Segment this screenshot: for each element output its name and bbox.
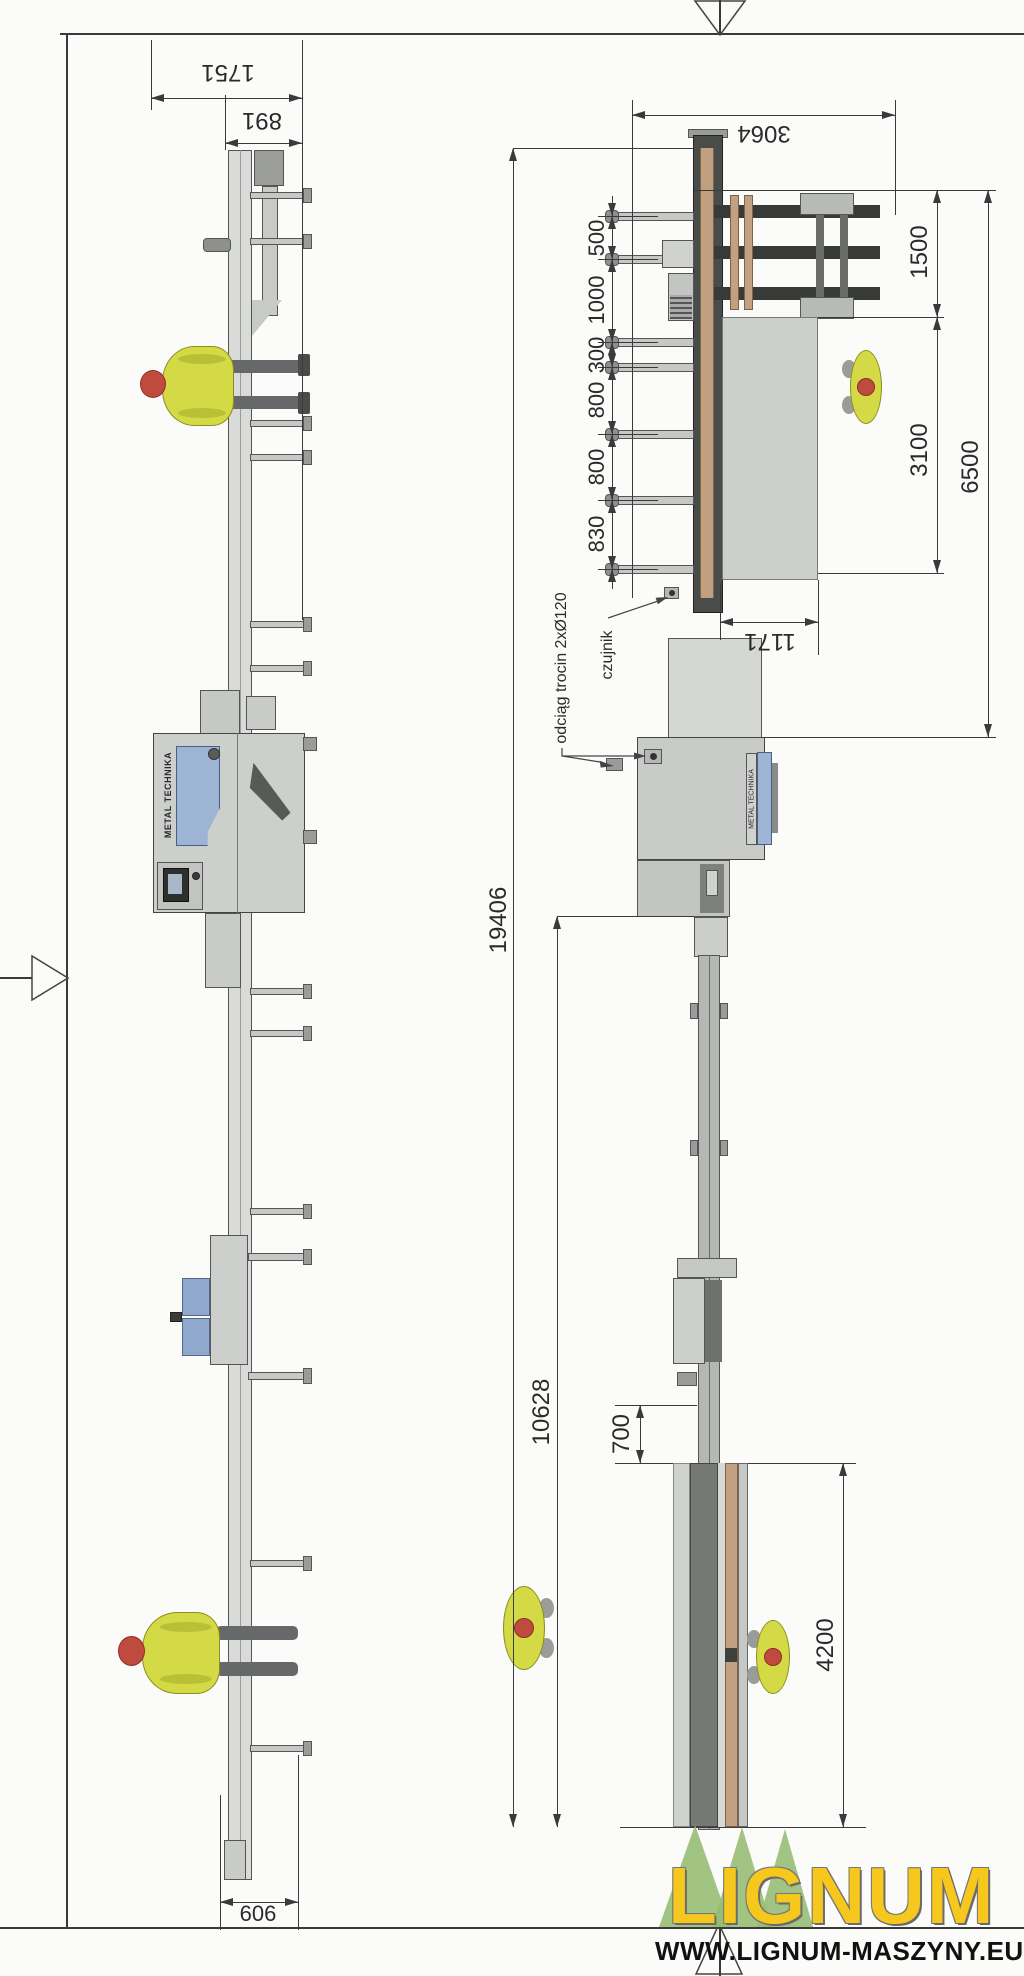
ext-line (513, 148, 693, 149)
dim-arrow (553, 1814, 561, 1827)
roller-stand (250, 621, 306, 628)
roller-stand (250, 454, 306, 461)
ext-line (720, 585, 721, 640)
board-on-chain (744, 195, 753, 310)
dim-line-1500-3100 (937, 190, 938, 573)
cabinet-bottom-column (205, 913, 241, 988)
dim-arrow (608, 434, 616, 447)
dim-text-830: 830 (584, 516, 610, 553)
dim-arrow (608, 500, 616, 513)
worker-helmet (514, 1618, 534, 1638)
section-marker-left-icon (30, 954, 70, 1002)
dim-arrow (509, 148, 517, 161)
dim-arrow (608, 556, 616, 569)
dim-text-891: 891 (242, 106, 282, 134)
ext-line (694, 190, 996, 191)
roller-stand-foot (303, 1556, 312, 1571)
motor-vent-grid (670, 295, 692, 319)
dim-text-19406: 19406 (485, 887, 513, 954)
cabinet-button (208, 748, 220, 760)
dim-arrow (933, 317, 941, 330)
dim-arrow (608, 421, 616, 434)
cabinet-brand-label: METAL TECHNIKA (163, 752, 173, 838)
elevation-gusset (252, 300, 282, 336)
elevation-infeed-mast (262, 186, 278, 316)
section-marker-left-line (0, 977, 32, 979)
outfeed-table-stop (725, 1648, 737, 1662)
outfeed-foot (720, 1140, 728, 1156)
plan-saw-neck (694, 917, 728, 957)
cabinet-port-lower (303, 830, 317, 844)
worker-boot (298, 354, 310, 376)
roller-stand-foot (303, 1026, 312, 1041)
roller-stand-foot (303, 1368, 312, 1384)
dim-text-4200: 4200 (812, 1618, 840, 1671)
worker-top-2 (503, 1586, 545, 1670)
dim-arrow (933, 560, 941, 573)
roller-stand-foot (303, 188, 312, 203)
dim-arrow (608, 259, 616, 272)
dim-line-3064 (632, 115, 895, 116)
ext-line (598, 569, 658, 570)
roller-stand-foot (303, 617, 312, 632)
worker-arm (178, 354, 226, 364)
worker-helmet (764, 1648, 782, 1666)
dim-line-6500 (988, 190, 989, 737)
dim-arrow (720, 618, 733, 626)
dim-arrow (636, 1405, 644, 1418)
outfeed-bracket (677, 1372, 697, 1386)
cross-module-body (210, 1235, 248, 1365)
ext-line (615, 1463, 673, 1464)
ext-line (763, 737, 996, 738)
section-marker-top-line (719, 0, 721, 34)
ext-line (557, 916, 694, 917)
plan-saw-bracket (772, 763, 778, 833)
worker-leg (228, 396, 306, 409)
roller-stand-foot (303, 450, 312, 465)
ext-line (220, 1795, 221, 1930)
dim-arrow (553, 916, 561, 929)
roller-stand (250, 238, 306, 245)
ext-line (598, 259, 658, 260)
dim-arrow (933, 190, 941, 203)
elevation-infeed-head-block (254, 150, 284, 186)
dim-line-1751 (151, 98, 302, 99)
worker-arm (160, 1674, 212, 1684)
dim-arrow (289, 94, 302, 102)
cabinet-port-upper (303, 737, 317, 751)
roller-stand (250, 1745, 306, 1752)
ext-line (818, 573, 944, 574)
roller-stand (250, 1560, 306, 1567)
ext-line (298, 1755, 299, 1930)
dim-text-1000: 1000 (584, 276, 610, 325)
rail-end-block (224, 1840, 246, 1880)
dim-arrow (984, 190, 992, 203)
worker-helmet (857, 378, 875, 396)
cross-module-door-upper (182, 1278, 210, 1316)
dim-line-19406 (513, 148, 514, 1827)
dim-text-606: 606 (240, 1901, 277, 1927)
dim-arrow (839, 1463, 847, 1476)
dim-text-6500: 6500 (957, 440, 985, 493)
dim-line-4200 (843, 1463, 844, 1827)
dim-arrow (151, 94, 164, 102)
chain-end-plate (800, 193, 854, 215)
dim-arrow (608, 487, 616, 500)
worker-arm (178, 408, 226, 418)
plan-saw-slot-bracket (706, 870, 718, 896)
ext-line (598, 216, 658, 217)
dim-arrow (636, 1450, 644, 1463)
cabinet-top-column (200, 690, 240, 735)
dim-text-300: 300 (584, 337, 610, 374)
worker-top-1 (850, 350, 882, 424)
outfeed-table-edge (673, 1463, 690, 1827)
dim-line-10628 (557, 916, 558, 1827)
ext-line (818, 580, 819, 655)
lignum-logo-text: LIGNUM (668, 1856, 996, 1936)
dim-arrow (220, 1898, 233, 1906)
ext-line (615, 1405, 697, 1406)
plan-saw-brand-label: METAL TECHNIKA (749, 769, 756, 829)
ext-line (632, 100, 633, 598)
dim-arrow (285, 1898, 298, 1906)
outfeed-cross-unit-wings (677, 1258, 737, 1278)
worker-helmet (118, 1636, 145, 1666)
dim-arrow (632, 111, 645, 119)
roller-stand (250, 1030, 306, 1037)
board-on-chain (730, 195, 739, 310)
roller-stand-foot (303, 984, 312, 999)
dim-arrow (882, 111, 895, 119)
dim-text-3100: 3100 (906, 423, 934, 476)
roller-stand-foot (303, 661, 312, 676)
cross-module-handle (170, 1312, 182, 1322)
cabinet-divider (237, 733, 238, 913)
ext-line (818, 317, 944, 318)
dim-arrow (608, 203, 616, 216)
dim-arrow (805, 618, 818, 626)
control-knob (192, 872, 200, 880)
roller-stand (250, 1208, 306, 1215)
worker-arm (160, 1622, 212, 1632)
roller-stand-foot (303, 1741, 312, 1756)
worker-helmet (140, 370, 166, 398)
dim-arrow (839, 1814, 847, 1827)
plan-saw-window (757, 752, 772, 845)
dim-arrow (289, 139, 302, 147)
dim-text-800a: 800 (584, 382, 610, 419)
worker-leg (216, 1662, 298, 1676)
dim-arrow (933, 304, 941, 317)
outfeed-table-rail (738, 1463, 748, 1827)
technical-drawing-canvas: METAL TECHNIKA (0, 0, 1024, 1976)
dim-text-800b: 800 (584, 449, 610, 486)
outfeed-foot (690, 1003, 698, 1019)
dim-text-1751: 1751 (201, 58, 254, 86)
storage-table-panel (722, 317, 818, 580)
dim-text-1171: 1171 (744, 627, 796, 655)
roller-stand (248, 1372, 306, 1380)
worker-side-2 (118, 1610, 300, 1696)
outfeed-table-board (725, 1463, 738, 1827)
dim-arrow (509, 1814, 517, 1827)
dim-arrow (225, 139, 238, 147)
roller-stand (248, 1253, 306, 1261)
dim-arrow (984, 724, 992, 737)
plan-infeed-boards (700, 148, 714, 598)
outfeed-cross-unit-box (673, 1278, 705, 1364)
ext-line (598, 500, 658, 501)
elevation-left-knob (203, 238, 231, 252)
roller-stand-foot (303, 1249, 312, 1265)
drive-motor-housing (662, 240, 694, 268)
dim-line-1171 (720, 622, 818, 623)
cross-module-door-lower (182, 1318, 210, 1356)
worker-boot (298, 392, 310, 414)
cabinet-top-box (246, 696, 276, 730)
callout-leader-lines (540, 580, 700, 800)
roller-stand-foot (303, 1204, 312, 1219)
roller-stand-foot (303, 234, 312, 249)
dim-text-10628: 10628 (528, 1379, 556, 1446)
dim-text-3064: 3064 (737, 119, 790, 147)
ext-line (895, 100, 896, 215)
roller-stand (250, 665, 306, 672)
worker-top-3 (756, 1620, 790, 1694)
worker-leg (228, 360, 306, 373)
dim-text-1500: 1500 (906, 225, 934, 278)
worker-side-1 (140, 346, 308, 428)
outfeed-table-belt (690, 1463, 718, 1827)
control-screen-glow (168, 874, 182, 894)
frame-top-border (60, 33, 1024, 35)
roller-stand (250, 192, 306, 199)
outfeed-table-gap (718, 1463, 725, 1827)
worker-leg (216, 1626, 298, 1640)
outfeed-cross-unit-slot (705, 1280, 722, 1362)
outfeed-foot (720, 1003, 728, 1019)
lignum-website-text: WWW.LIGNUM-MASZYNY.EU (655, 1936, 1024, 1967)
roller-stand (250, 988, 306, 995)
chain-end-plate (800, 297, 854, 319)
outfeed-foot (690, 1140, 698, 1156)
dim-text-500: 500 (584, 220, 610, 257)
dim-text-700: 700 (608, 1414, 636, 1454)
ext-line (302, 40, 303, 620)
ext-line (598, 434, 658, 435)
